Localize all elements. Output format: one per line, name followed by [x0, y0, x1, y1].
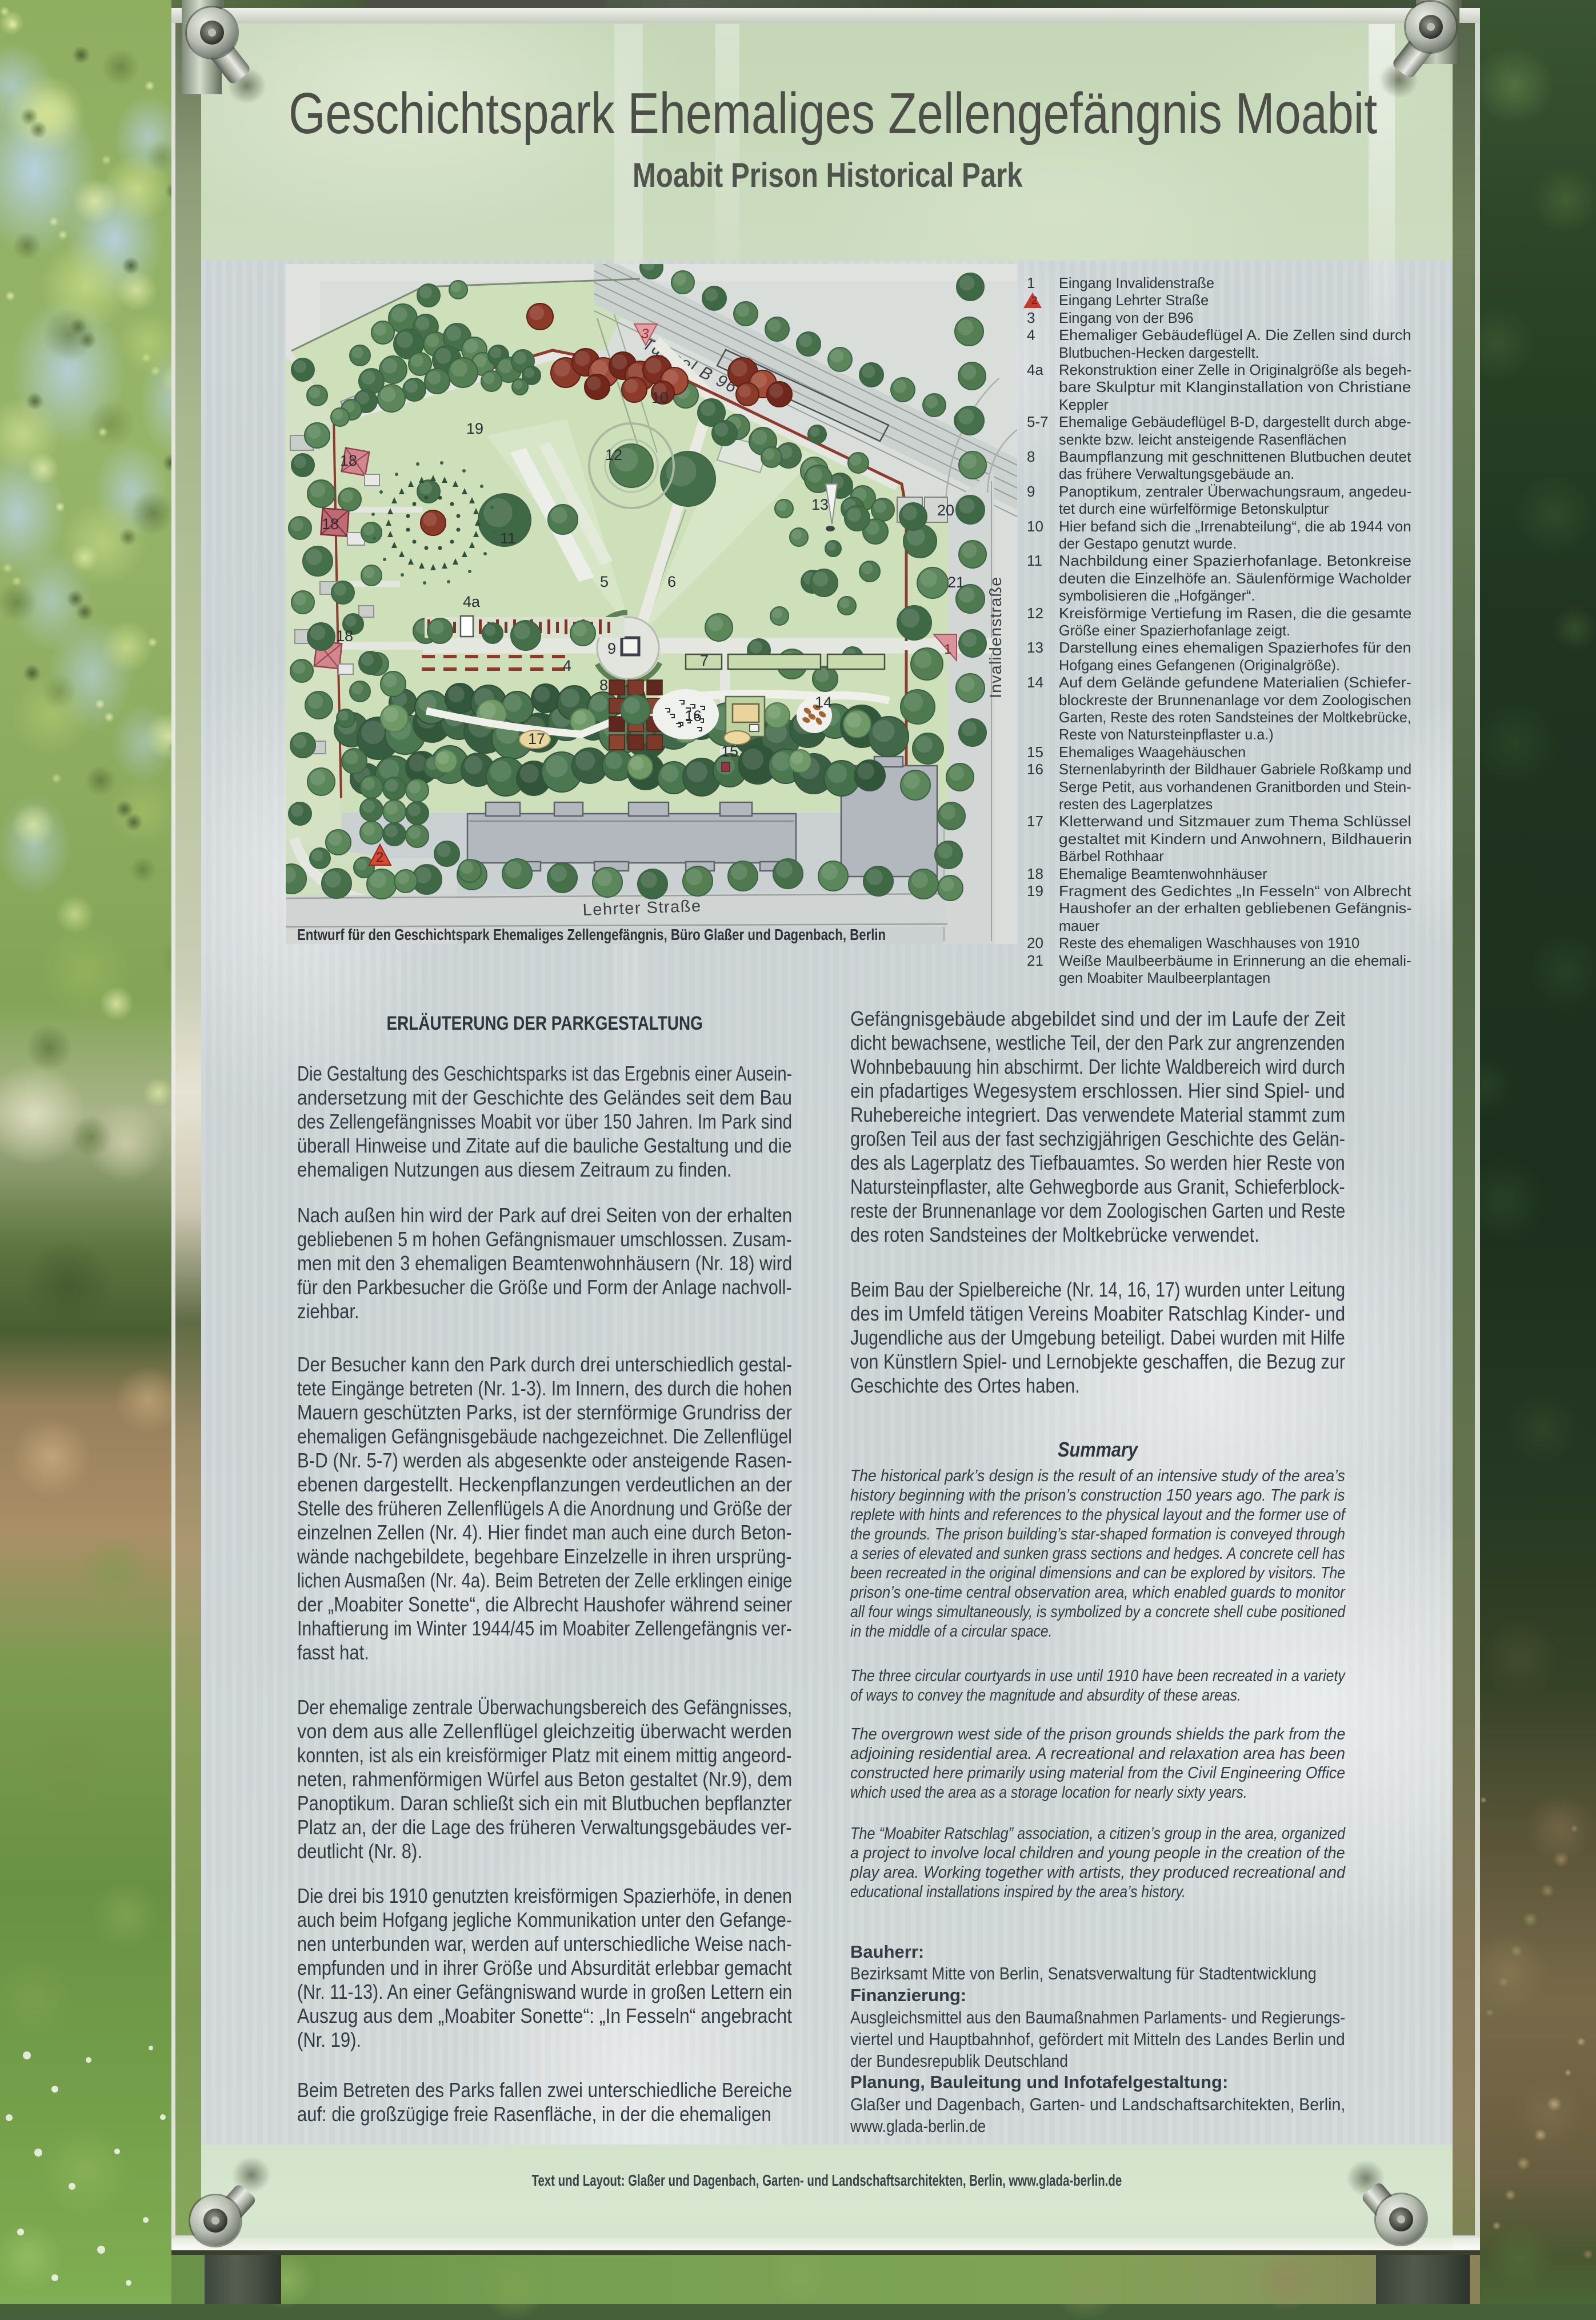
svg-text:4: 4 [563, 657, 571, 674]
svg-text:8: 8 [599, 677, 608, 694]
svg-text:16: 16 [685, 707, 702, 725]
svg-text:19: 19 [466, 420, 483, 437]
svg-text:7: 7 [700, 652, 709, 669]
svg-text:11: 11 [500, 530, 516, 547]
svg-text:20: 20 [937, 502, 954, 519]
svg-text:14: 14 [815, 694, 832, 711]
svg-text:3: 3 [641, 326, 649, 342]
svg-text:10: 10 [651, 389, 669, 406]
svg-text:6: 6 [667, 573, 676, 590]
svg-text:17: 17 [528, 730, 545, 747]
svg-text:5: 5 [600, 573, 609, 590]
svg-text:2: 2 [376, 850, 383, 865]
svg-text:18: 18 [340, 452, 357, 469]
svg-text:1: 1 [944, 642, 951, 657]
svg-text:13: 13 [811, 496, 829, 513]
svg-text:21: 21 [947, 574, 965, 591]
svg-text:4a: 4a [463, 593, 481, 610]
svg-text:18: 18 [322, 515, 339, 533]
svg-text:12: 12 [605, 446, 622, 463]
svg-text:Invalidenstraße: Invalidenstraße [987, 577, 1005, 698]
svg-text:15: 15 [721, 743, 738, 760]
svg-text:9: 9 [607, 640, 616, 657]
svg-text:18: 18 [336, 627, 353, 645]
